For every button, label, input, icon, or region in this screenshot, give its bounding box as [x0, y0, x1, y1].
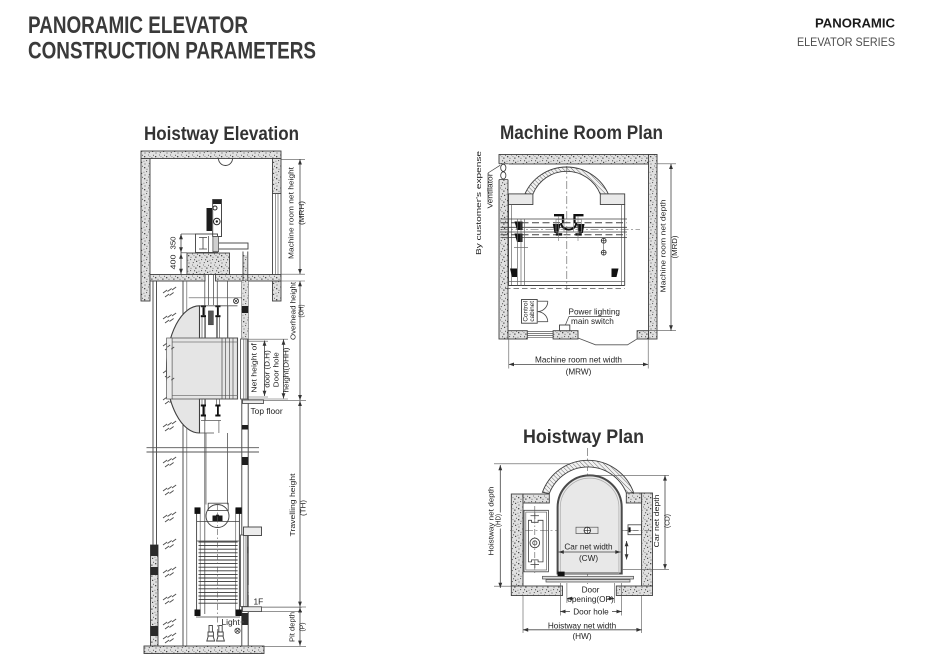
svg-text:PANORAMIC ELEVATOR: PANORAMIC ELEVATOR: [28, 12, 248, 39]
svg-text:Car net depth: Car net depth: [652, 495, 661, 548]
svg-text:main switch: main switch: [571, 317, 614, 326]
svg-text:By customer's expense: By customer's expense: [474, 151, 483, 255]
svg-text:Net height of: Net height of: [250, 342, 259, 393]
svg-text:(MRH): (MRH): [297, 201, 306, 225]
svg-text:350: 350: [168, 237, 177, 250]
svg-text:Hoistway Elevation: Hoistway Elevation: [144, 124, 299, 145]
svg-text:Machine Room Plan: Machine Room Plan: [500, 123, 663, 144]
svg-text:Door: Door: [582, 586, 600, 595]
svg-text:PANORAMIC: PANORAMIC: [815, 16, 895, 31]
svg-text:Travelling height: Travelling height: [288, 472, 297, 536]
svg-text:ELEVATOR SERIES: ELEVATOR SERIES: [797, 35, 895, 49]
svg-text:Machine room net depth: Machine room net depth: [658, 200, 667, 293]
svg-text:(CW): (CW): [579, 554, 598, 563]
svg-text:Car net width: Car net width: [564, 543, 613, 552]
svg-text:Light: Light: [222, 617, 241, 627]
svg-text:CONSTRUCTION PARAMETERS: CONSTRUCTION PARAMETERS: [28, 37, 316, 64]
svg-text:Top floor: Top floor: [251, 406, 283, 416]
svg-text:Ventilator: Ventilator: [485, 173, 494, 209]
svg-text:(OH): (OH): [297, 304, 306, 317]
svg-text:(TH): (TH): [298, 500, 307, 516]
svg-text:(MRD): (MRD): [670, 235, 679, 258]
svg-text:Power lighting: Power lighting: [569, 308, 621, 317]
svg-text:1F: 1F: [254, 597, 264, 607]
svg-text:Machine room net height: Machine room net height: [286, 166, 295, 259]
svg-text:Hoistway net width: Hoistway net width: [548, 621, 617, 630]
svg-text:(HW): (HW): [572, 632, 591, 641]
svg-text:Hoistway Plan: Hoistway Plan: [523, 427, 644, 448]
svg-text:Pit depth: Pit depth: [288, 612, 297, 642]
svg-text:cabinet: cabinet: [529, 301, 536, 322]
svg-text:(CD): (CD): [663, 514, 672, 528]
svg-text:(MRW): (MRW): [566, 368, 592, 377]
svg-text:door (D.H): door (D.H): [262, 350, 271, 388]
svg-text:Door hole: Door hole: [573, 608, 609, 617]
svg-text:(P): (P): [298, 622, 307, 631]
svg-text:(HD): (HD): [494, 514, 503, 527]
svg-text:Machine room net width: Machine room net width: [535, 356, 622, 365]
svg-text:400: 400: [168, 255, 177, 270]
svg-text:Door hole: Door hole: [272, 352, 281, 387]
svg-text:opening(OP): opening(OP): [567, 595, 614, 604]
svg-text:height(DHH): height(DHH): [281, 347, 290, 392]
